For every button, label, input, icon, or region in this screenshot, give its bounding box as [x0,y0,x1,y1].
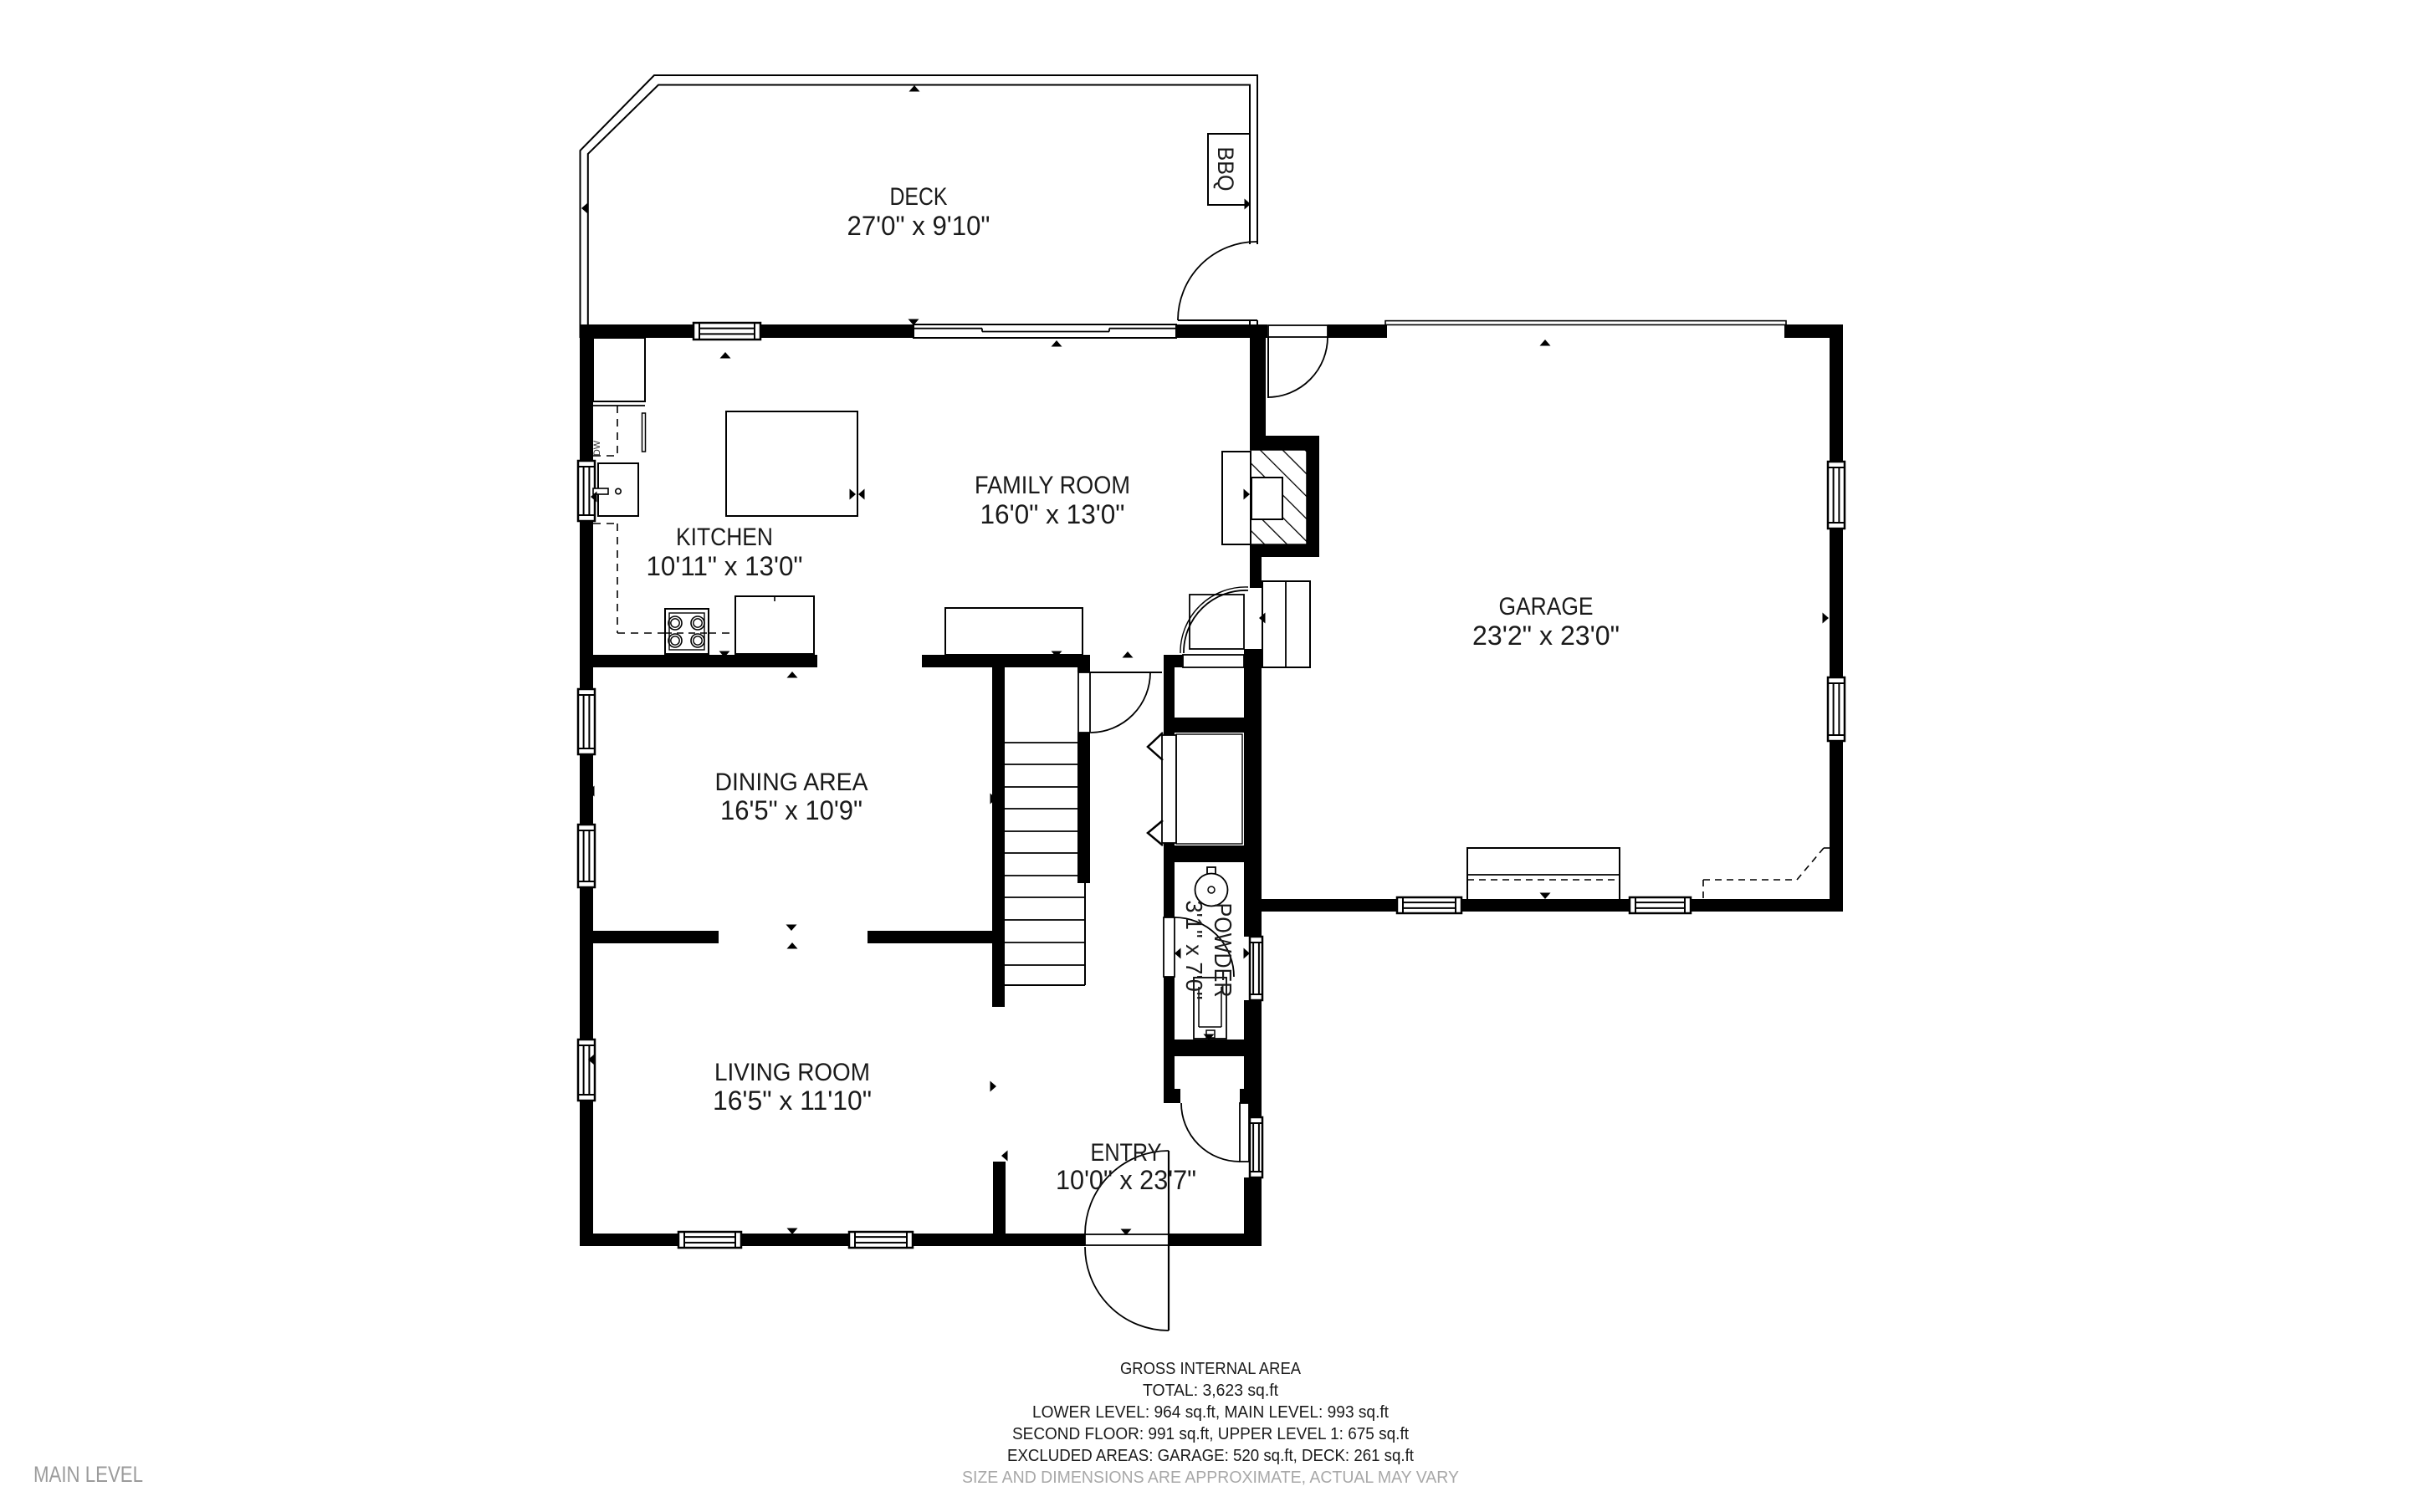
svg-text:10'11" x 13'0": 10'11" x 13'0" [647,551,803,581]
svg-text:MAIN LEVEL: MAIN LEVEL [33,1462,143,1487]
svg-text:KITCHEN: KITCHEN [676,524,773,551]
svg-text:16'5" x 11'10": 16'5" x 11'10" [713,1085,872,1116]
svg-text:10'0" x 23'7": 10'0" x 23'7" [1056,1165,1196,1195]
svg-text:GROSS INTERNAL AREA: GROSS INTERNAL AREA [1120,1360,1302,1378]
svg-text:LOWER LEVEL: 964 sq.ft, MAIN L: LOWER LEVEL: 964 sq.ft, MAIN LEVEL: 993 … [1032,1403,1389,1422]
svg-text:SECOND FLOOR: 991 sq.ft, UPPER: SECOND FLOOR: 991 sq.ft, UPPER LEVEL 1: … [1012,1425,1409,1443]
svg-text:EXCLUDED AREAS: GARAGE: 520 sq: EXCLUDED AREAS: GARAGE: 520 sq.ft, DECK:… [1007,1447,1414,1465]
svg-text:16'5" x 10'9": 16'5" x 10'9" [720,795,862,825]
svg-text:TOTAL: 3,623 sq.ft: TOTAL: 3,623 sq.ft [1143,1382,1278,1400]
svg-text:3'1" x 7'0": 3'1" x 7'0" [1181,901,1207,1000]
svg-text:POWDER: POWDER [1209,903,1236,998]
svg-text:FAMILY ROOM: FAMILY ROOM [975,472,1130,499]
svg-text:16'0" x 13'0": 16'0" x 13'0" [980,499,1125,529]
svg-text:DECK: DECK [890,183,948,211]
svg-text:ENTRY: ENTRY [1091,1139,1162,1167]
svg-text:27'0" x 9'10": 27'0" x 9'10" [847,211,990,241]
svg-text:BBQ: BBQ [1213,147,1238,192]
svg-text:LIVING ROOM: LIVING ROOM [714,1059,870,1086]
svg-text:DW: DW [592,440,602,456]
svg-text:DINING AREA: DINING AREA [715,769,868,796]
svg-text:GARAGE: GARAGE [1499,593,1594,621]
svg-text:23'2" x 23'0": 23'2" x 23'0" [1472,621,1620,651]
svg-text:SIZE AND DIMENSIONS ARE APPROX: SIZE AND DIMENSIONS ARE APPROXIMATE, ACT… [962,1469,1459,1487]
